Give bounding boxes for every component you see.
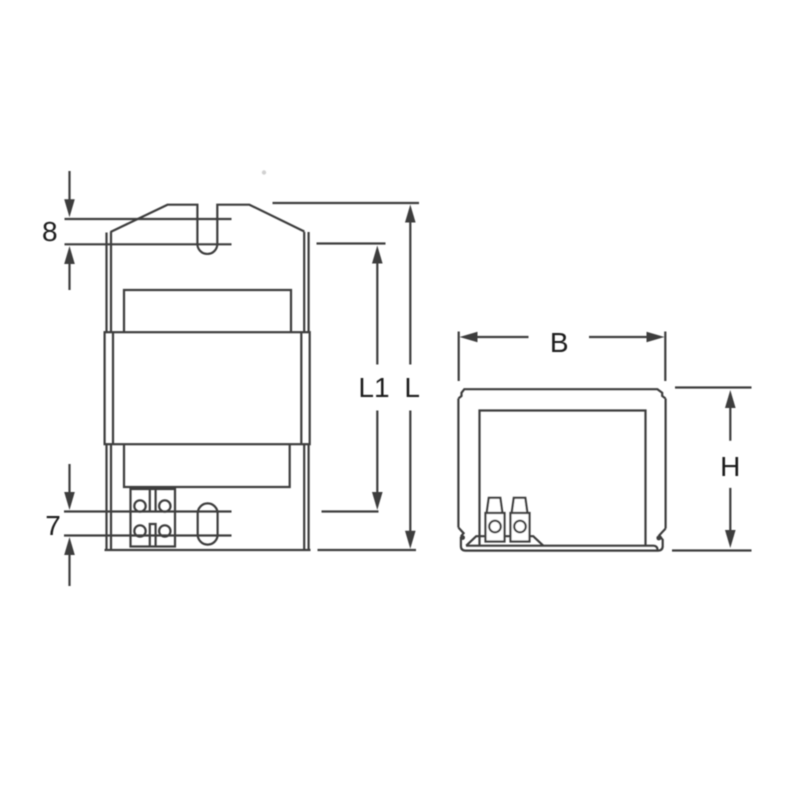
svg-text:H: H	[720, 451, 740, 482]
svg-text:7: 7	[45, 510, 61, 541]
svg-text:B: B	[550, 327, 569, 358]
svg-text:L1: L1	[358, 372, 389, 403]
svg-text:L: L	[404, 372, 420, 403]
svg-text:8: 8	[42, 216, 58, 247]
